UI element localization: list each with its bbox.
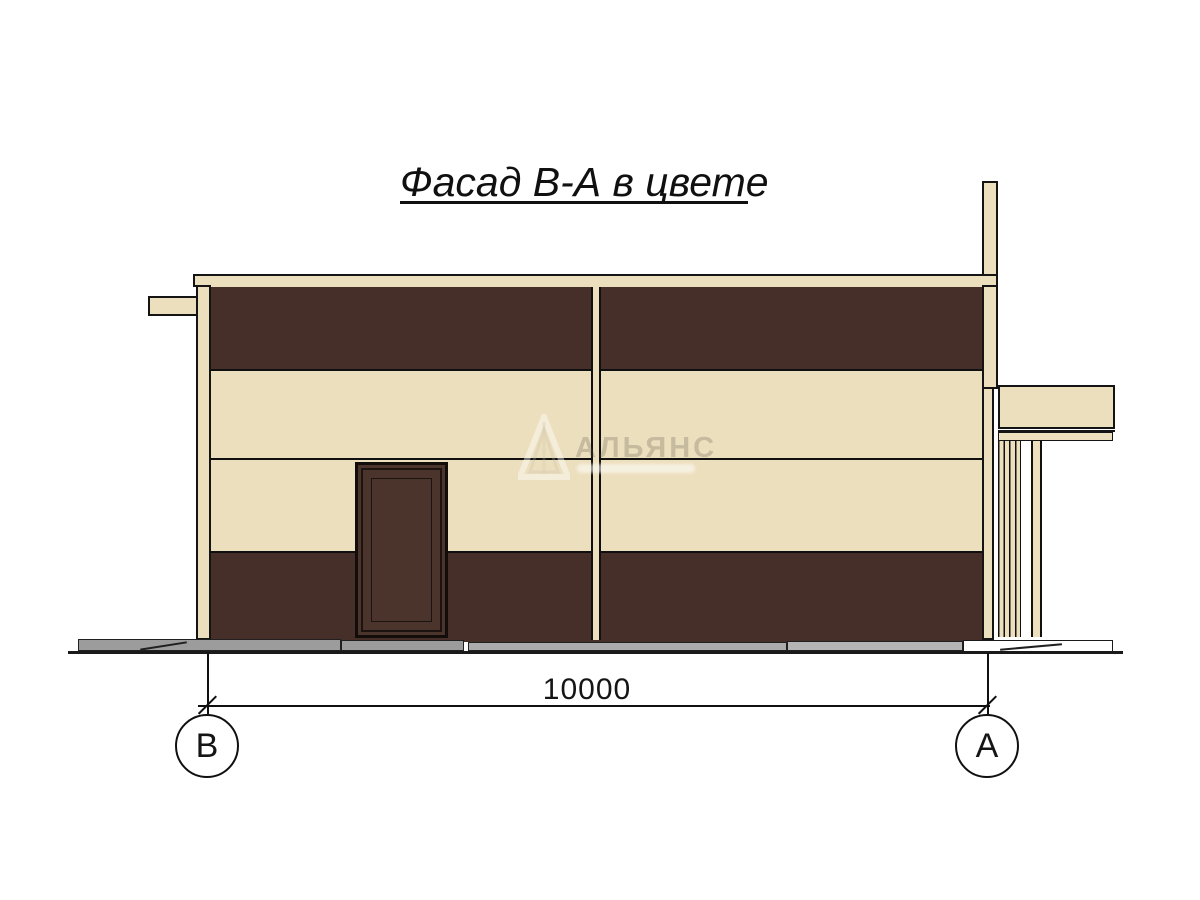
plinth-segment-1 bbox=[78, 639, 341, 651]
right-corner-trim-lower bbox=[982, 389, 994, 640]
plinth-segment-2 bbox=[341, 640, 464, 651]
dimension-value: 10000 bbox=[532, 673, 642, 707]
plinth-segment-4 bbox=[787, 641, 963, 651]
axis-label-a: А bbox=[976, 727, 999, 766]
door-frame bbox=[361, 468, 442, 632]
right-corner-trim-upper bbox=[982, 285, 998, 389]
drawing-title: Фасад В-А в цвете bbox=[400, 162, 748, 204]
watermark-text: АЛЬЯНС bbox=[575, 432, 717, 465]
watermark-pyramid-icon bbox=[518, 414, 570, 480]
left-ledge bbox=[148, 296, 198, 316]
axis-marker-a: А bbox=[955, 714, 1019, 778]
colonnade-column bbox=[1031, 441, 1042, 637]
canopy-slab bbox=[998, 385, 1115, 429]
entrance-door bbox=[355, 462, 448, 638]
colonnade-stripes bbox=[998, 441, 1021, 637]
axis-marker-b: В bbox=[175, 714, 239, 778]
chimney bbox=[982, 181, 998, 281]
door-panel bbox=[371, 478, 432, 622]
plinth-segment-3 bbox=[468, 642, 787, 651]
facade-drawing-canvas: Фасад В-А в цвете 10000 В А bbox=[0, 0, 1200, 900]
ground-line bbox=[68, 651, 1123, 654]
axis-label-b: В bbox=[196, 727, 219, 766]
watermark-subtext-bar bbox=[577, 464, 695, 473]
canopy-board bbox=[998, 432, 1113, 441]
left-corner-trim bbox=[196, 285, 211, 640]
